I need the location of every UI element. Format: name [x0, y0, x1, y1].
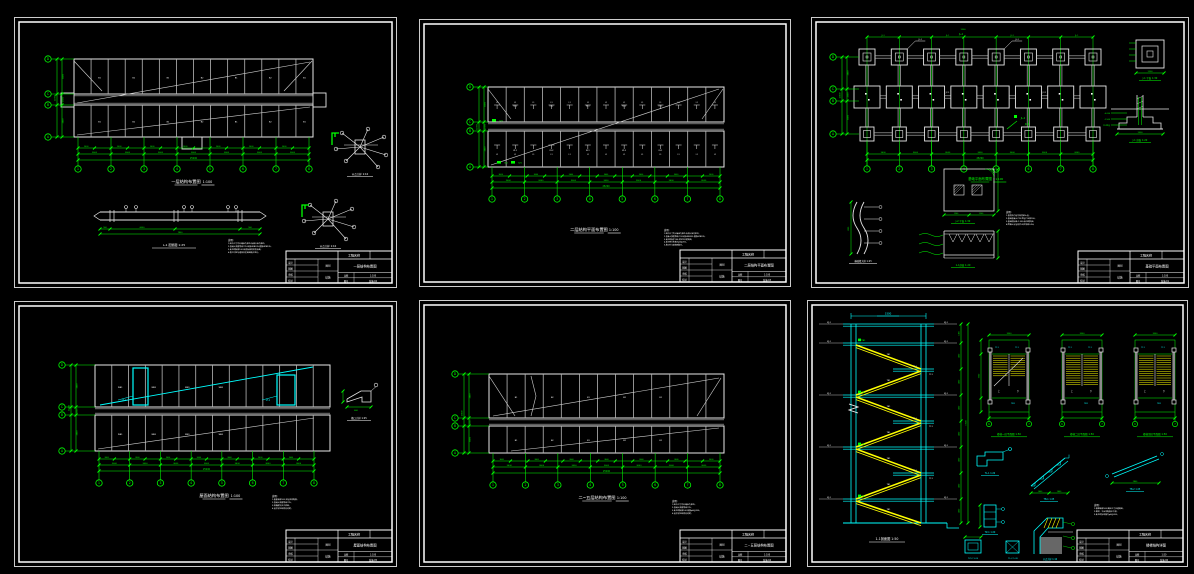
svg-text:3600: 3600 [507, 465, 513, 467]
dimension-band-horizontal: 1234567836003600360036003600360036003600… [75, 137, 312, 172]
svg-text:L1: L1 [569, 102, 571, 104]
svg-text:审核: 审核 [288, 552, 293, 556]
svg-text:说明:: 说明: [1006, 210, 1012, 214]
svg-text:设计: 设计 [682, 260, 687, 264]
svg-text:1:100: 1:100 [764, 554, 771, 557]
svg-text:校对: 校对 [288, 558, 293, 562]
svg-text:B1: B1 [98, 77, 101, 79]
svg-text:WB2: WB2 [219, 434, 224, 436]
svg-text:8: 8 [719, 197, 721, 201]
svg-text:JL-1: JL-1 [918, 39, 922, 41]
svg-text:KL1: KL1 [586, 105, 590, 107]
title-block: 工程名称设计制图审核校对图别结施屋面结构布置图比例1:100图号结施-05 [286, 530, 392, 562]
svg-text:4800: 4800 [485, 146, 487, 152]
svg-text:3600: 3600 [1074, 152, 1080, 154]
svg-text:审核: 审核 [1080, 273, 1085, 277]
svg-text:TB1: TB1 [1157, 403, 1162, 405]
svg-text:4: 4 [190, 481, 192, 485]
svg-text:L1: L1 [696, 154, 698, 156]
svg-text:3600: 3600 [538, 180, 544, 182]
svg-text:D: D [47, 57, 50, 61]
svg-text:5: 5 [622, 483, 624, 487]
svg-text:1:100: 1:100 [995, 177, 1003, 181]
svg-text:1400: 1400 [959, 457, 961, 462]
svg-text:KJ-1: KJ-1 [827, 322, 832, 324]
svg-text:说明:: 说明: [1094, 503, 1100, 507]
svg-text:7: 7 [275, 167, 277, 171]
svg-text:6: 6 [654, 197, 656, 201]
svg-text:TL1: TL1 [929, 426, 933, 428]
svg-text:基础平面布置图: 基础平面布置图 [1145, 264, 1169, 269]
svg-text:3300: 3300 [1153, 333, 1159, 335]
svg-text:C: C [469, 120, 471, 124]
svg-text:1200: 1200 [954, 213, 959, 215]
svg-text:L1: L1 [605, 154, 607, 156]
svg-text:1500: 1500 [1137, 132, 1143, 134]
green-annotation-cluster: JL-2JC-2JL-21200 [958, 29, 1030, 129]
svg-text:25200: 25200 [977, 157, 985, 160]
svg-text:3300: 3300 [979, 373, 981, 378]
svg-text:1.图中尺寸均以毫米为单位,标高以米为单位。: 1.图中尺寸均以毫米为单位,标高以米为单位。 [664, 231, 700, 235]
svg-text:L1: L1 [678, 102, 680, 104]
svg-text:3600: 3600 [534, 174, 538, 176]
svg-text:C: C [61, 405, 63, 409]
svg-text:D: D [61, 363, 64, 367]
svg-text:25200: 25200 [603, 185, 611, 188]
dimension-band-vertical: DCBA48002400480012000 [467, 84, 488, 170]
svg-text:3600: 3600 [143, 463, 149, 465]
svg-text:L1: L1 [696, 102, 698, 104]
svg-text:4800: 4800 [470, 436, 472, 442]
dimension-band-horizontal: 3600360036003600360036003600252001234567… [864, 141, 1096, 172]
svg-text:KJ-1: KJ-1 [827, 497, 832, 499]
svg-text:4800: 4800 [63, 73, 65, 79]
svg-text:3600: 3600 [569, 174, 573, 176]
svg-text:LT-1: LT-1 [122, 399, 127, 402]
svg-text:A: A [47, 135, 50, 139]
sheet-canvas: B1B1B2B2B1B1B2B2B1B1B2B2B1B1123456783600… [14, 17, 397, 288]
svg-text:KL2: KL2 [550, 105, 554, 107]
svg-text:B: B [61, 413, 63, 417]
svg-text:25200: 25200 [190, 157, 198, 160]
svg-text:4800: 4800 [63, 118, 65, 124]
svg-text:3300: 3300 [1080, 333, 1086, 335]
svg-text:TB-2 1:25: TB-2 1:25 [1130, 488, 1141, 491]
svg-text:KL2: KL2 [622, 105, 626, 107]
svg-text:1:50: 1:50 [1162, 554, 1168, 557]
svg-text:3600: 3600 [117, 146, 121, 148]
svg-text:制图: 制图 [682, 266, 687, 270]
svg-text:1200: 1200 [979, 213, 984, 215]
svg-text:A: A [454, 451, 457, 455]
svg-text:1200: 1200 [1147, 71, 1153, 73]
svg-text:3300: 3300 [885, 312, 892, 316]
dimension-band-vertical: DCBA48002400480012000 [830, 54, 859, 137]
svg-text:屋面结构布置图: 屋面结构布置图 [353, 543, 377, 548]
svg-text:比例: 比例 [1135, 553, 1140, 557]
svg-text:L1: L1 [678, 154, 680, 156]
svg-text:KL1: KL1 [586, 150, 590, 152]
svg-text:审核: 审核 [682, 552, 687, 556]
svg-text:1400: 1400 [959, 483, 961, 488]
svg-text:TL1: TL1 [1161, 347, 1165, 349]
svg-text:设计: 设计 [682, 540, 687, 544]
svg-text:3600: 3600 [183, 146, 187, 148]
svg-text:KL2: KL2 [550, 150, 554, 152]
stair-plan-2: TL1TL1上下TB1330067楼梯二层平面图 1:50 [1059, 333, 1104, 437]
svg-text:D: D [454, 372, 457, 376]
svg-text:1400: 1400 [959, 330, 961, 335]
svg-text:1: 1 [491, 197, 493, 201]
svg-text:下: 下 [1017, 390, 1020, 393]
svg-text:900: 900 [248, 227, 252, 229]
svg-text:3300: 3300 [1007, 333, 1013, 335]
svg-text:B2: B2 [269, 77, 272, 79]
svg-text:JC-1: JC-1 [1042, 92, 1047, 94]
svg-text:3600: 3600 [604, 459, 608, 461]
svg-text:B1: B1 [303, 77, 306, 79]
svg-text:3600: 3600 [105, 457, 109, 459]
svg-text:3600: 3600 [173, 463, 179, 465]
svg-text:TL1: TL1 [929, 478, 933, 480]
svg-text:KJ-1: KJ-1 [944, 445, 949, 447]
svg-text:3600: 3600 [674, 174, 678, 176]
sheet-canvas: JL-1JL-1JL-1JL-1JL-1JC-1JL-1JC-1JL-2JC-2… [811, 17, 1189, 288]
svg-text:1400: 1400 [1057, 491, 1062, 493]
node-detail: 节点大样 1:10 [302, 199, 356, 248]
svg-text:3600: 3600 [639, 459, 643, 461]
svg-text:J-2 平面 1:30: J-2 平面 1:30 [955, 219, 971, 223]
svg-text:7: 7 [1028, 423, 1030, 426]
svg-text:制图: 制图 [1079, 546, 1084, 550]
svg-text:2: 2 [110, 167, 112, 171]
svg-text:TB1: TB1 [1011, 403, 1016, 405]
svg-text:TZ-1 1:20: TZ-1 1:20 [985, 531, 996, 534]
svg-text:B1: B1 [167, 122, 170, 124]
footing-plan-2-detail: 12001200J-2 平面 1:30 [943, 168, 1000, 224]
svg-text:图别: 图别 [326, 543, 331, 547]
svg-text:4800: 4800 [77, 383, 79, 389]
section-cut-icon [302, 205, 309, 217]
drawing-sheet-first-floor-plan: B1B1B2B2B1B1B2B2B1B1B2B2B1B1123456783600… [14, 17, 397, 288]
svg-text:基础平面布置图: 基础平面布置图 [968, 176, 992, 181]
svg-text:7: 7 [686, 197, 688, 201]
dimension-band-vertical: DCBA48002400480012000 [45, 56, 74, 140]
svg-text:3600: 3600 [669, 465, 675, 467]
svg-text:WB1: WB1 [185, 434, 190, 436]
svg-text:J-1 平面 1:30: J-1 平面 1:30 [1142, 76, 1158, 80]
svg-text:3600: 3600 [945, 152, 951, 154]
svg-text:KJ-1: KJ-1 [944, 393, 949, 395]
title-block: 工程名称设计制图审核校对图别结施基础平面布置图比例1:100图号结施-01 [1078, 251, 1184, 283]
svg-text:审核: 审核 [1079, 552, 1084, 556]
svg-text:JC-2: JC-2 [1024, 123, 1030, 126]
svg-text:L1: L1 [514, 102, 516, 104]
svg-text:3600: 3600 [257, 152, 263, 154]
svg-text:结施-03: 结施-03 [763, 278, 772, 282]
svg-text:B1: B1 [659, 440, 662, 442]
svg-text:8: 8 [308, 167, 310, 171]
svg-text:结施: 结施 [325, 555, 331, 559]
svg-text:B1: B1 [98, 122, 101, 124]
stair-details: TL-1 1:2014001400TB-1 1:252800TB-2 1:25T… [964, 448, 1164, 561]
svg-text:3600: 3600 [135, 457, 139, 459]
dimension-band-vertical: DCBA48002400480012000 [59, 362, 95, 454]
svg-text:900: 900 [103, 227, 107, 229]
svg-text:4800: 4800 [485, 101, 487, 107]
svg-text:工程名称: 工程名称 [1140, 253, 1152, 258]
svg-text:3600: 3600 [499, 174, 503, 176]
svg-text:L1: L1 [496, 154, 498, 156]
svg-text:校对: 校对 [1080, 279, 1085, 283]
svg-text:WB2: WB2 [151, 434, 156, 436]
svg-text:7: 7 [282, 481, 284, 485]
svg-text:檐口大样 1:25: 檐口大样 1:25 [351, 416, 367, 420]
svg-text:设计: 设计 [1080, 261, 1085, 265]
svg-text:结施-06: 结施-06 [1160, 558, 1169, 562]
svg-text:B2: B2 [623, 440, 626, 442]
svg-text:KL1: KL1 [659, 105, 663, 107]
svg-text:B1: B1 [587, 440, 590, 442]
svg-text:3600: 3600 [881, 152, 887, 154]
svg-text:3600: 3600 [1042, 152, 1048, 154]
notes-block: 说明:1.图中尺寸均以毫米为单位,标高以米为单位。2.混凝土强度等级C25,纵筋… [664, 228, 706, 247]
svg-text:节点大样 1:10: 节点大样 1:10 [1043, 557, 1058, 561]
svg-text:楼梯二层平面图 1:50: 楼梯二层平面图 1:50 [1070, 432, 1094, 436]
svg-text:L1: L1 [514, 154, 516, 156]
svg-text:12000: 12000 [55, 94, 57, 101]
svg-text:KL1: KL1 [659, 150, 663, 152]
svg-text:3600: 3600 [636, 465, 642, 467]
svg-text:B2: B2 [551, 440, 554, 442]
svg-text:7: 7 [687, 483, 689, 487]
svg-text:校对: 校对 [682, 278, 687, 282]
svg-text:1:100: 1:100 [370, 554, 377, 557]
svg-text:L1: L1 [496, 102, 498, 104]
svg-text:6: 6 [242, 167, 244, 171]
svg-text:L1: L1 [623, 154, 625, 156]
svg-text:C: C [454, 416, 456, 420]
svg-text:L1: L1 [532, 102, 534, 104]
svg-text:3600: 3600 [290, 152, 296, 154]
svg-text:4800: 4800 [77, 430, 79, 436]
svg-text:3600: 3600 [604, 465, 610, 467]
foundation-plan: JL-1JL-1JL-1JL-1JL-1JC-1JL-1JC-1 [854, 35, 1106, 166]
svg-text:结施-02: 结施-02 [369, 279, 378, 283]
svg-text:2: 2 [129, 481, 131, 485]
svg-text:-0.050: -0.050 [1104, 113, 1111, 115]
notes-block: 说明:1.基底持力层为粉质粘土层。2.基础混凝土C25,垫层C10厚100。3.… [1006, 210, 1036, 226]
svg-text:KJ-1: KJ-1 [944, 497, 949, 499]
svg-text:校对: 校对 [288, 279, 293, 283]
svg-text:3600: 3600 [158, 152, 164, 154]
svg-text:TB1: TB1 [887, 354, 892, 356]
svg-text:3: 3 [557, 483, 559, 487]
svg-text:6: 6 [252, 481, 254, 485]
svg-text:3600: 3600 [197, 457, 201, 459]
svg-text:1:100: 1:100 [609, 228, 619, 232]
svg-text:J-1 剖面 1:20: J-1 剖面 1:20 [1132, 138, 1148, 142]
svg-text:TL1: TL1 [1141, 347, 1145, 349]
svg-text:KJ-1: KJ-1 [827, 445, 832, 447]
drawing-caption: 一层结构布置图1:100 [171, 178, 214, 185]
svg-text:L1: L1 [641, 102, 643, 104]
svg-text:3.600: 3.600 [966, 420, 968, 426]
svg-text:3600: 3600 [92, 152, 98, 154]
svg-text:3600: 3600 [636, 180, 642, 182]
svg-text:3600: 3600 [191, 152, 197, 154]
dimension-band-horizontal: 1234567836003600360036003600360036003600… [489, 167, 723, 202]
svg-text:1: 1 [77, 167, 79, 171]
sheet-canvas: KL1KL1KL2KL2KL1KL1KL2KL2KL1KL1L1L1L1L1L1… [419, 19, 791, 287]
svg-text:TB-1 1:25: TB-1 1:25 [1044, 498, 1055, 501]
svg-text:1400: 1400 [959, 431, 961, 436]
svg-text:8: 8 [313, 481, 315, 485]
svg-text:6: 6 [1027, 167, 1029, 171]
svg-text:二层结构平面布置图: 二层结构平面布置图 [744, 263, 774, 268]
stair-plan-1: TL1TL1上下TB13300673300楼梯一层平面图 1:50 [979, 333, 1032, 437]
svg-text:1-1剖面图 1:50: 1-1剖面图 1:50 [876, 536, 899, 541]
svg-text:600: 600 [354, 410, 359, 412]
svg-text:3600: 3600 [701, 180, 707, 182]
svg-text:3600: 3600 [535, 459, 539, 461]
stair-section: TB1TB1TB1TB1TB1TB1TB1TL1TL1TL1TL1TL1TL1P… [819, 312, 970, 543]
svg-text:1.图中尺寸均以毫米为单位,标高以米为单位。: 1.图中尺寸均以毫米为单位,标高以米为单位。 [228, 241, 266, 245]
eave-detail: 600檐口大样 1:25 [342, 383, 378, 420]
svg-text:B2: B2 [201, 122, 204, 124]
svg-text:3600: 3600 [265, 463, 271, 465]
svg-text:A: A [832, 132, 835, 136]
svg-text:L-1 配筋图 1:25: L-1 配筋图 1:25 [163, 242, 185, 247]
svg-text:图别: 图别 [326, 264, 331, 268]
svg-text:3600: 3600 [701, 465, 707, 467]
svg-text:8: 8 [719, 483, 721, 487]
svg-text:2400: 2400 [848, 92, 850, 98]
svg-text:PTB1: PTB1 [860, 496, 866, 498]
dimension-band-horizontal: 1234567836003600360036003600360036003600… [490, 453, 723, 488]
svg-text:3600: 3600 [569, 459, 573, 461]
svg-text:TB1: TB1 [887, 406, 892, 408]
drawing-caption: 二层结构平面布置图1:100 [570, 226, 621, 233]
framing-plan: B1B1B2B2B1B1B2B2B1B1B2B2B1B1 [61, 59, 326, 149]
svg-text:L1: L1 [569, 154, 571, 156]
svg-text:C10垫层: C10垫层 [1103, 123, 1110, 127]
sheet-canvas: WB1WB1WB2WB2WB1WB1WB2WB2LT-1LT-112345678… [14, 301, 397, 567]
footing-plan-detail: 1200J-1 平面 1:30 [1129, 40, 1166, 81]
svg-text:1:100: 1:100 [764, 274, 771, 277]
svg-text:1400: 1400 [959, 379, 961, 384]
svg-text:3600: 3600 [249, 146, 253, 148]
svg-text:PTB1: PTB1 [860, 340, 866, 342]
svg-text:TB1: TB1 [1084, 403, 1089, 405]
svg-text:二层结构平面布置图: 二层结构平面布置图 [570, 226, 608, 233]
svg-text:L1: L1 [587, 102, 589, 104]
svg-text:B1: B1 [587, 397, 590, 399]
svg-text:2: 2 [524, 197, 526, 201]
svg-text:6: 6 [654, 483, 656, 487]
svg-text:1:100: 1:100 [617, 496, 627, 500]
svg-text:一层结构布置图: 一层结构布置图 [353, 264, 377, 269]
dimension-band-vertical: DCBA48002400480012000 [452, 371, 489, 456]
svg-text:图别: 图别 [1117, 543, 1122, 547]
svg-text:3600: 3600 [669, 180, 675, 182]
svg-text:3600: 3600 [913, 152, 919, 154]
stair-plan-3: TL1TL1上下TB1330067楼梯顶层平面图 1:50 [1132, 333, 1177, 437]
svg-text:JL-2: JL-2 [1020, 117, 1026, 120]
title-block: 工程名称设计制图审核校对图别结施二层结构平面布置图比例1:100图号结施-03 [680, 250, 786, 282]
svg-text:B1: B1 [515, 397, 518, 399]
svg-text:B: B [469, 129, 471, 133]
svg-text:6000: 6000 [140, 227, 146, 229]
svg-text:说明:: 说明: [672, 499, 678, 503]
svg-text:1400: 1400 [959, 508, 961, 513]
svg-text:1:100: 1:100 [231, 494, 241, 498]
svg-text:设计: 设计 [288, 540, 293, 544]
stair-node-detail: 节点大样 1:10 [1034, 518, 1075, 561]
svg-text:3600: 3600 [603, 180, 609, 182]
svg-text:TL1: TL1 [929, 374, 933, 376]
svg-text:L1: L1 [623, 102, 625, 104]
svg-text:JC-1: JC-1 [945, 92, 950, 94]
svg-text:比例: 比例 [344, 274, 349, 278]
svg-text:图别: 图别 [720, 543, 725, 547]
svg-text:4800: 4800 [470, 393, 472, 399]
svg-text:TL1: TL1 [1015, 347, 1019, 349]
svg-text:JL-1: JL-1 [1014, 39, 1018, 41]
title-block: 工程名称设计制图审核校对图别结施二~五层结构布置图比例1:100图号结施-04 [680, 530, 786, 562]
svg-text:KJ-1: KJ-1 [827, 341, 832, 343]
svg-text:结施: 结施 [719, 275, 725, 279]
svg-text:L1: L1 [659, 154, 661, 156]
svg-text:2400: 2400 [470, 419, 472, 425]
svg-text:7: 7 [1101, 423, 1103, 426]
svg-text:TL1: TL1 [1088, 347, 1092, 349]
svg-text:图别: 图别 [1118, 264, 1123, 268]
svg-text:12000: 12000 [462, 410, 464, 417]
svg-text:2400: 2400 [485, 123, 487, 129]
svg-text:5: 5 [209, 167, 211, 171]
svg-text:B2: B2 [132, 77, 135, 79]
cyan-overlay: LT-1LT-1 [100, 367, 313, 405]
title-block: 工程名称设计制图审核校对图别结施一层结构布置图比例1:100图号结施-02 [286, 251, 392, 283]
svg-text:TL1: TL1 [995, 347, 999, 349]
svg-text:楼梯顶层平面图 1:50: 楼梯顶层平面图 1:50 [1143, 432, 1167, 436]
svg-text:L1: L1 [532, 154, 534, 156]
svg-text:校对: 校对 [682, 558, 687, 562]
svg-text:GZ1: GZ1 [518, 162, 523, 164]
svg-text:JL-2: JL-2 [958, 33, 964, 36]
svg-text:4: 4 [589, 483, 591, 487]
svg-text:6: 6 [1134, 423, 1136, 426]
wall-section-detail: 1200基础墙大样 1:25 [848, 201, 882, 264]
svg-text:2400: 2400 [63, 96, 65, 102]
svg-text:B2: B2 [269, 122, 272, 124]
svg-text:3: 3 [159, 481, 161, 485]
svg-text:屋面结构布置图: 屋面结构布置图 [199, 492, 228, 499]
svg-text:2: 2 [524, 483, 526, 487]
svg-text:3600: 3600 [296, 463, 302, 465]
svg-text:KJ-1: KJ-1 [944, 322, 949, 324]
svg-text:B1: B1 [167, 77, 170, 79]
svg-text:3600: 3600 [604, 174, 608, 176]
svg-text:3600: 3600 [166, 457, 170, 459]
svg-text:基础墙大样 1:25: 基础墙大样 1:25 [854, 259, 872, 263]
svg-text:图别: 图别 [720, 263, 725, 267]
svg-text:L1: L1 [605, 102, 607, 104]
beam-elevation: 90060009007800L-1 配筋图 1:25 [94, 206, 266, 249]
svg-text:3600: 3600 [258, 457, 262, 459]
svg-text:B1: B1 [515, 440, 518, 442]
